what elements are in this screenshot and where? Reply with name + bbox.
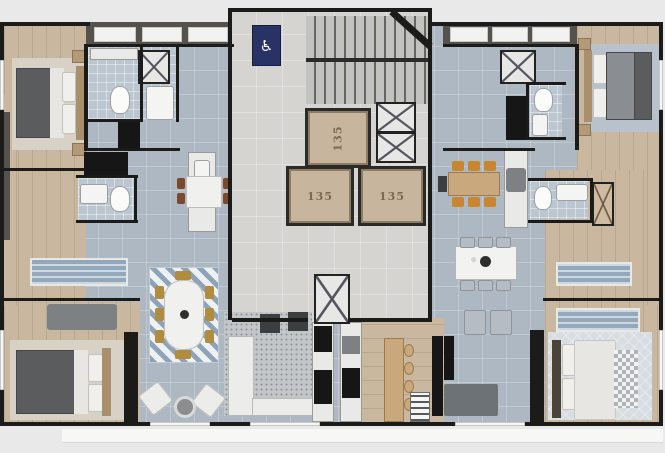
wardrobe-strip (30, 258, 128, 286)
terrace-ledge (62, 429, 663, 442)
elevator-1-label: 135 (332, 125, 345, 151)
wheelchair-icon: ♿ (260, 37, 273, 55)
tv-console (444, 336, 454, 380)
bed-duvet (574, 340, 616, 420)
mustard-chair (484, 197, 496, 207)
bed-headboard (584, 50, 592, 122)
sink-unit (342, 336, 360, 354)
bed-blanket (16, 350, 82, 414)
gray-chair (478, 237, 493, 248)
gray-chair (496, 237, 511, 248)
toilet (534, 186, 552, 210)
fridge (506, 168, 526, 192)
planter (142, 27, 182, 42)
bath-vanity (556, 184, 588, 201)
window (150, 422, 210, 426)
mustard-chair (468, 197, 480, 207)
wall (528, 178, 592, 181)
wall-core-right (428, 8, 432, 320)
gray-chair (496, 280, 511, 291)
dining-chair (177, 193, 185, 204)
nightstand (578, 124, 591, 136)
wood-chair (404, 362, 414, 375)
bath-vanity (80, 184, 108, 204)
window (659, 60, 663, 110)
appliance (314, 370, 332, 404)
gray-chair (460, 237, 475, 248)
wall (528, 82, 566, 85)
checkered-throw (614, 350, 638, 408)
shaft-x-1 (376, 102, 416, 133)
gold-chair (155, 286, 164, 299)
wall (443, 44, 579, 47)
wall (528, 220, 592, 223)
washer (146, 86, 174, 120)
wall (84, 44, 88, 150)
window (0, 330, 4, 390)
wall (84, 148, 180, 151)
sofa-gray (444, 384, 498, 416)
daybed (47, 304, 117, 330)
wall (232, 318, 308, 322)
mustard-chair (468, 161, 480, 171)
tv-wall-left (124, 332, 138, 424)
bed-pillow (593, 88, 607, 118)
kitchen-counter (118, 122, 140, 148)
wall (176, 46, 179, 122)
floor-plan: ♿ 135 135 135 (0, 0, 665, 453)
end-chair (438, 176, 447, 192)
gold-chair (205, 308, 214, 321)
wall (0, 22, 90, 26)
toilet (110, 186, 130, 212)
wall (134, 178, 137, 220)
wall (84, 119, 142, 122)
pouf (174, 396, 196, 418)
bed-headboard (102, 348, 111, 416)
bath-sink (532, 114, 548, 136)
gray-chair (478, 280, 493, 291)
nightstand (578, 38, 591, 50)
wall-bottom (0, 422, 663, 426)
stair-flight-lower (306, 62, 428, 104)
kitchen-counter (506, 96, 528, 140)
wall (230, 8, 430, 12)
shower-bench (90, 48, 138, 60)
wall (86, 44, 234, 47)
mustard-chair (452, 197, 464, 207)
centerpiece (480, 256, 491, 267)
wall (526, 82, 529, 140)
sliding-door (455, 422, 525, 426)
shaft-x-5 (500, 50, 536, 84)
wall (443, 148, 535, 151)
planter (492, 27, 528, 42)
toilet (534, 88, 553, 112)
lounge-chair (490, 310, 512, 335)
bed-sheet (74, 350, 88, 414)
tv-wall-right (530, 330, 544, 424)
planter (532, 27, 570, 42)
centerpiece (180, 310, 189, 319)
window (659, 330, 663, 390)
wall (76, 175, 138, 178)
elevator-2: 135 (286, 166, 354, 226)
elevator-2-label: 135 (307, 190, 333, 203)
planter (94, 27, 136, 42)
wood-table (384, 338, 404, 422)
elevator-1: 135 (305, 108, 371, 168)
wall (4, 298, 140, 301)
gold-chair (155, 330, 164, 343)
gold-chair (175, 350, 191, 359)
wall (348, 318, 432, 322)
mustard-chair (484, 161, 496, 171)
lounge-chair (464, 310, 486, 335)
dining-table-a (186, 176, 222, 208)
appliance (314, 326, 332, 352)
planter (450, 27, 488, 42)
accessible-wc-sign: ♿ (252, 25, 281, 66)
wardrobe-x-cabinet (592, 182, 614, 226)
stove (342, 368, 360, 398)
bed-headboard (552, 340, 561, 418)
shelf-cabinet (432, 336, 443, 416)
bed-headboard (76, 66, 84, 140)
elevator-3: 135 (358, 166, 426, 226)
dining-table-c (448, 172, 500, 196)
mustard-chair (452, 161, 464, 171)
bed-pillow (88, 354, 103, 382)
planter (188, 27, 228, 42)
wall (76, 220, 138, 223)
bed-pillow (62, 104, 76, 134)
wall (528, 137, 566, 140)
gold-chair (205, 286, 214, 299)
wall (575, 44, 579, 150)
armchair (260, 314, 280, 333)
wall (140, 46, 143, 122)
stair-landing-divider (306, 58, 428, 62)
wall (543, 298, 663, 301)
wood-chair (404, 344, 414, 357)
sliding-door (250, 422, 320, 426)
bed-runner (634, 52, 652, 120)
dining-chair (177, 178, 185, 189)
dresser-strip (556, 308, 640, 332)
ladder-chair (410, 392, 430, 422)
wall (4, 168, 86, 171)
window (0, 60, 4, 110)
wall-core-left (228, 8, 232, 320)
sofa-l-vertical (228, 336, 254, 416)
gold-chair (175, 271, 191, 280)
wall (430, 22, 663, 26)
gold-chair (155, 308, 164, 321)
shaft-x-2 (376, 132, 416, 163)
bed-pillow (62, 72, 76, 102)
gold-chair (205, 330, 214, 343)
wardrobe-strip (556, 262, 632, 286)
toilet (110, 86, 130, 114)
shaft-x-3 (314, 274, 350, 324)
wall (590, 178, 593, 223)
bed-pillow (593, 54, 607, 84)
bed-pillow (88, 384, 103, 412)
gray-chair (460, 280, 475, 291)
sofa-l-horizontal (252, 398, 314, 416)
elevator-3-label: 135 (379, 190, 405, 203)
